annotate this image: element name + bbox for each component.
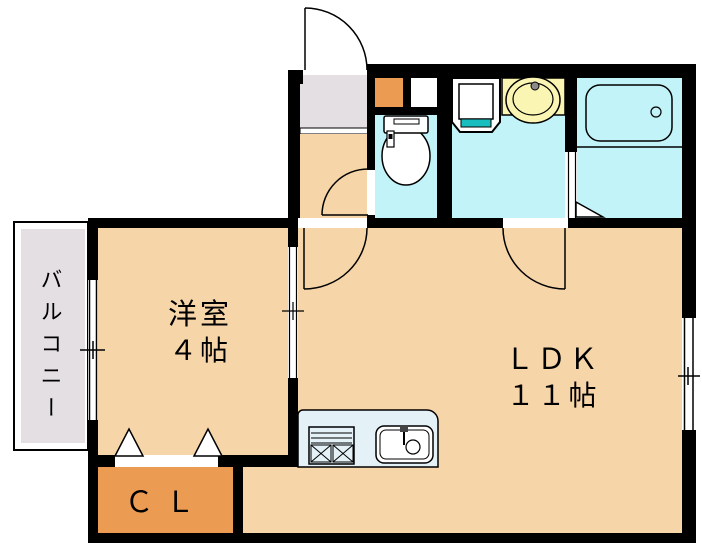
wall-ldk-top-left xyxy=(367,218,503,228)
basin-faucet xyxy=(531,82,539,90)
hall-ldk-opening xyxy=(300,218,367,228)
western-room-name: 洋室 xyxy=(168,299,232,331)
ldk-name: ＬＤＫ xyxy=(505,344,601,376)
wall-right-lower xyxy=(682,430,696,543)
entrance-door-arc xyxy=(305,8,367,70)
floor-plan: バルコニー 洋室 ４帖 ＬＤＫ １１帖 ＣＬ xyxy=(0,0,702,555)
washroom-ldk-opening xyxy=(503,218,568,228)
wall-toilet-left xyxy=(367,115,375,170)
western-room-label: 洋室 ４帖 xyxy=(110,297,290,368)
wall-closet-right xyxy=(233,455,243,543)
wall-hall-left xyxy=(288,70,300,218)
pan-inner xyxy=(459,84,493,119)
wall-right-upper xyxy=(682,64,696,318)
sink-drain xyxy=(406,440,420,454)
wall-partition-bottom xyxy=(288,378,298,467)
western-room-size: ４帖 xyxy=(110,333,290,368)
wall-closet-left xyxy=(88,455,98,543)
toilet xyxy=(382,116,430,185)
wall-toilet-washroom xyxy=(437,64,452,228)
ldk-size: １１帖 xyxy=(463,378,643,413)
genkan-step xyxy=(300,128,368,134)
bathtub xyxy=(577,85,682,147)
pan-drain xyxy=(461,119,491,127)
ldk-label: ＬＤＫ １１帖 xyxy=(463,342,643,413)
wall-toilet-top xyxy=(367,107,443,115)
toilet-control-button xyxy=(389,134,393,139)
wall-western-left-upper xyxy=(88,218,98,280)
wall-western-bottom-right xyxy=(218,455,298,467)
ldk-floor-strip xyxy=(243,467,298,533)
hallway-floor xyxy=(300,134,368,218)
toilet-doorway xyxy=(367,170,375,215)
bathtub-drain xyxy=(651,107,661,117)
washing-machine-pan xyxy=(452,78,500,132)
kitchen-sink xyxy=(376,425,433,463)
closet-opening xyxy=(115,455,218,467)
wall-top xyxy=(367,64,695,78)
wall-ldk-top-right xyxy=(568,218,695,228)
kitchen-counter xyxy=(298,410,438,467)
wall-western-top xyxy=(88,218,298,228)
wall-bottom xyxy=(88,533,695,543)
sink-faucet-head xyxy=(400,425,408,432)
shoe-cabinet xyxy=(375,77,403,107)
entrance-genkan-floor xyxy=(300,75,368,128)
wall-washroom-bath xyxy=(565,64,577,152)
floor-plan-drawing xyxy=(0,0,702,555)
balcony-label: バルコニー xyxy=(36,248,64,448)
wall-entrance-left xyxy=(288,70,303,84)
closet-label: ＣＬ xyxy=(98,485,233,521)
